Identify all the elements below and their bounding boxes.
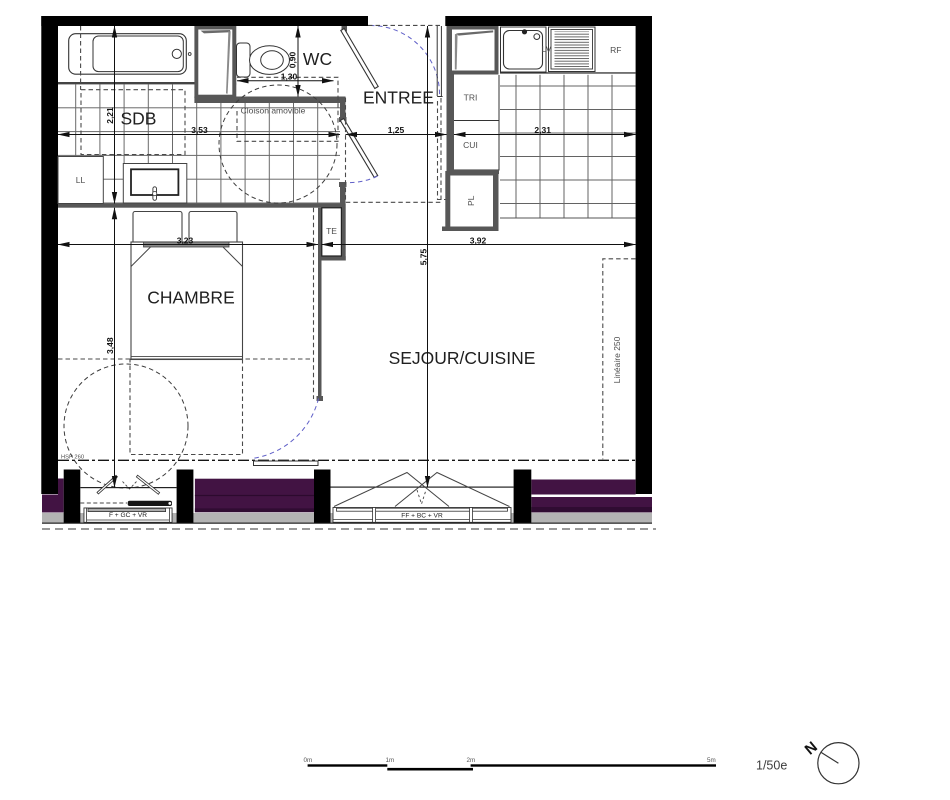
svg-text:LV: LV: [542, 44, 552, 54]
svg-text:1m: 1m: [386, 757, 395, 764]
svg-text:0,90: 0,90: [288, 51, 298, 68]
svg-text:CHAMBRE: CHAMBRE: [147, 288, 235, 308]
svg-text:2m: 2m: [467, 757, 476, 764]
svg-text:3,23: 3,23: [177, 235, 194, 245]
svg-text:FF + BC + VR: FF + BC + VR: [401, 513, 443, 520]
svg-text:TE: TE: [326, 226, 337, 236]
svg-text:RF: RF: [610, 45, 621, 55]
svg-text:Cloison amovible: Cloison amovible: [241, 106, 306, 116]
svg-text:SDB: SDB: [121, 109, 157, 129]
svg-text:Linéaire 250: Linéaire 250: [612, 336, 622, 383]
svg-text:1,30: 1,30: [281, 71, 298, 81]
svg-text:LL: LL: [76, 175, 86, 185]
svg-text:3,92: 3,92: [470, 235, 487, 245]
svg-text:5m: 5m: [707, 757, 716, 764]
svg-text:2,31: 2,31: [534, 125, 551, 135]
svg-text:ENTREE: ENTREE: [363, 88, 434, 108]
svg-text:3,53: 3,53: [191, 125, 208, 135]
svg-text:0m: 0m: [304, 757, 313, 764]
svg-text:1/50e: 1/50e: [756, 759, 787, 773]
svg-text:2,21: 2,21: [105, 107, 115, 124]
svg-text:HSP 260: HSP 260: [61, 455, 84, 461]
svg-text:1,25: 1,25: [388, 125, 405, 135]
svg-text:3,48: 3,48: [105, 337, 115, 354]
svg-text:F + GC + VR: F + GC + VR: [109, 512, 147, 519]
svg-text:TRI: TRI: [464, 93, 478, 103]
svg-text:CUI: CUI: [463, 140, 478, 150]
svg-text:5,75: 5,75: [418, 248, 428, 265]
svg-text:PL: PL: [466, 195, 476, 206]
svg-text:N: N: [802, 738, 821, 758]
svg-text:WC: WC: [303, 49, 332, 69]
svg-text:SEJOUR/CUISINE: SEJOUR/CUISINE: [389, 348, 536, 368]
